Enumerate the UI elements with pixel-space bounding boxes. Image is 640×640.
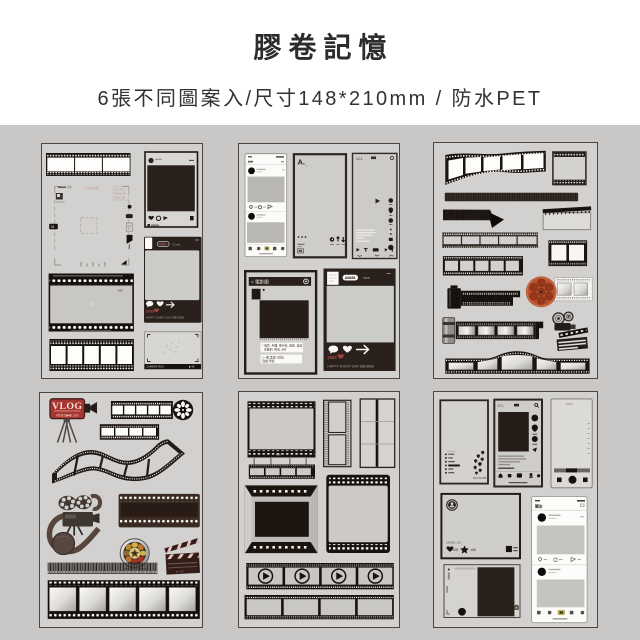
svg-text:01: 01 [51, 225, 55, 229]
svg-text:8888: 8888 [445, 586, 449, 593]
svg-text:HAPPY EVERY DAY 888 8888: HAPPY EVERY DAY 888 8888 [327, 364, 374, 368]
svg-text:x88: x88 [471, 548, 476, 552]
svg-text:早晚的, 每天, 8月: 早晚的, 每天, 8月 [264, 346, 286, 351]
svg-text:MOVIE 888: MOVIE 888 [473, 476, 487, 480]
svg-text:A.: A. [298, 158, 306, 167]
svg-text:< 電影圖: < 電影圖 [251, 278, 269, 285]
svg-text:▲ 8 ⊕: ▲ 8 ⊕ [175, 569, 184, 573]
svg-text:A8888: A8888 [345, 276, 356, 280]
svg-text:· 8888: · 8888 [564, 402, 573, 406]
svg-text:A88: A88 [276, 453, 281, 457]
svg-text:x28: x28 [453, 548, 458, 552]
svg-text:12:1: 12:1 [356, 157, 363, 161]
svg-text:12:1: 12:1 [498, 404, 504, 408]
svg-text:8888: 8888 [146, 310, 154, 314]
svg-text:8888: 8888 [159, 242, 166, 246]
svg-text:CAMERA-FILM: CAMERA-FILM [147, 366, 164, 369]
svg-text:▶ 88: ▶ 88 [189, 366, 195, 369]
svg-text:A-MOVIE: A-MOVIE [85, 187, 100, 191]
svg-text:8888: 8888 [327, 355, 337, 360]
svg-text:MADE x 28: MADE x 28 [447, 541, 462, 545]
svg-text:▸88: ▸88 [118, 289, 123, 293]
svg-text:· 7888: · 7888 [361, 276, 370, 280]
svg-text:C'mm.: C'mm. [173, 242, 182, 246]
svg-text:•••: ••• [387, 271, 392, 276]
svg-text:HAPPY EVERY DAY 888 8888: HAPPY EVERY DAY 888 8888 [146, 315, 185, 319]
svg-text:VLOG: VLOG [52, 401, 82, 412]
svg-text:自由 早樣: 自由 早樣 [262, 358, 274, 363]
svg-text:VIDEO▶BLOG: VIDEO▶BLOG [56, 414, 79, 418]
svg-text:關注: 關注 [535, 503, 543, 508]
svg-text:DAY 08: DAY 08 [115, 196, 125, 200]
